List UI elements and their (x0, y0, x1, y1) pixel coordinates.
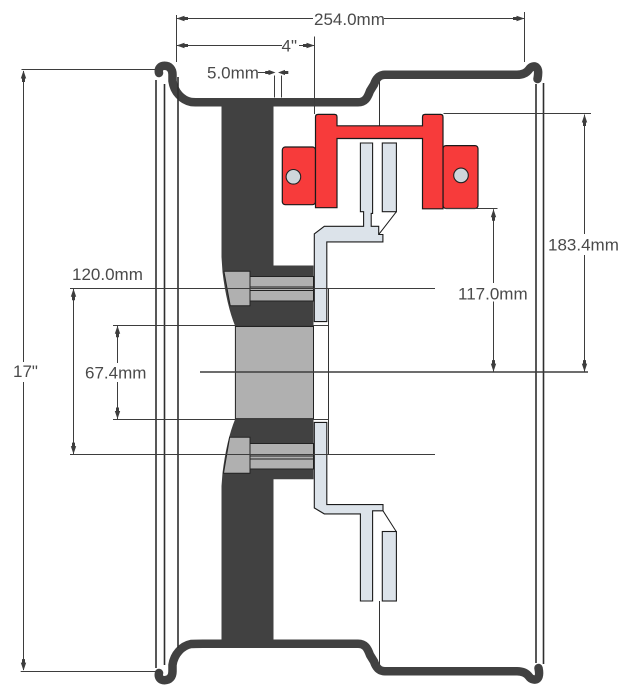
svg-text:4": 4" (282, 36, 298, 55)
svg-text:117.0mm: 117.0mm (458, 285, 528, 304)
svg-text:254.0mm: 254.0mm (314, 10, 385, 29)
svg-text:120.0mm: 120.0mm (72, 265, 143, 284)
svg-text:5.0mm: 5.0mm (207, 64, 259, 83)
svg-text:67.4mm: 67.4mm (85, 364, 146, 383)
svg-text:183.4mm: 183.4mm (548, 236, 619, 255)
svg-text:17": 17" (13, 362, 38, 381)
